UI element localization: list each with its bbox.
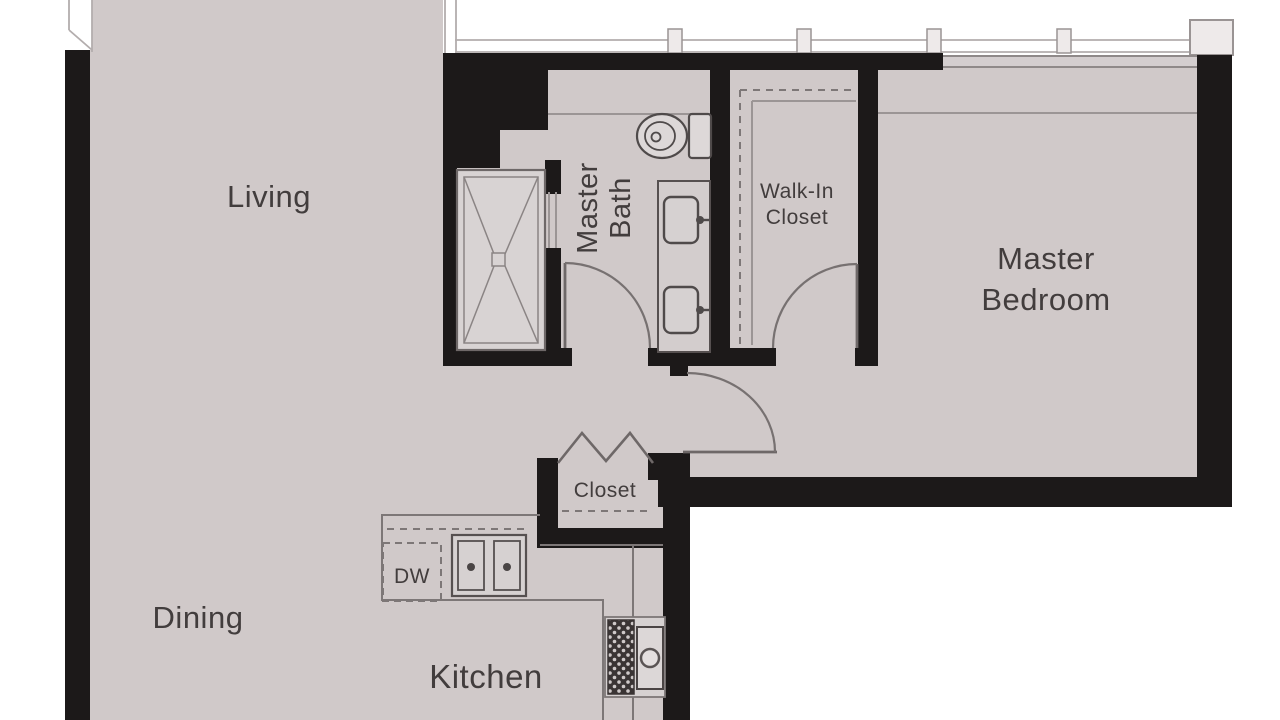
burner-strip [608,620,634,694]
wall-wic-bedroom-divider [858,70,878,352]
wall-shower-divider-upper [545,160,561,194]
bath-floor-notch [500,130,548,168]
exterior-top [443,0,1280,53]
exterior-bottom-right [690,507,1280,720]
room-label-living: Living [227,179,311,214]
kitchen-sink-icon [452,535,526,596]
sink-outer [452,535,526,596]
appliance-label-dishwasher: DW [394,565,430,588]
mullion-icon [668,29,682,53]
room-label-master-bedroom-line2: Bedroom [981,282,1110,317]
wall-shower-west [443,130,457,366]
corner-post-icon [1190,20,1233,55]
room-label-kitchen: Kitchen [429,658,543,695]
door-jamb-stub [670,362,688,376]
wall-bath-wic-divider [710,70,730,352]
wall-corner-jamb [648,453,690,480]
mullion-icon [927,29,941,53]
bedroom-window-glass [941,56,1197,67]
wall-kitchen-east [663,477,690,720]
oven-knob [641,649,659,667]
toilet-icon [637,114,711,158]
vanity-sink [664,197,698,243]
floor-plan-page: Living Dining Kitchen DW Closet Walk-In … [0,0,1280,720]
mullion-icon [1057,29,1071,53]
room-label-master-bath-line1: Master [572,162,604,254]
exterior-left [0,0,65,720]
window-gap [62,0,92,50]
shower-drain [492,253,505,266]
wall-left-exterior [65,50,90,720]
mullion-icon [797,29,811,53]
wall-bedroom-south [658,477,1232,507]
room-label-master-bath-line2: Bath [605,177,637,239]
room-label-walk-in-closet-line1: Walk-In [760,180,834,203]
wall-shower-divider-lower [545,248,561,350]
wall-right-exterior [1197,55,1232,490]
vanity-double-sink-icon [658,181,710,352]
faucet-icon [467,563,475,571]
vanity-sink [664,287,698,333]
room-label-hall-closet: Closet [574,479,637,502]
room-label-master-bedroom-line1: Master [997,241,1095,276]
shower-icon [457,170,545,350]
floor-plan: Living Dining Kitchen DW Closet Walk-In … [0,0,1280,720]
room-label-dining: Dining [153,600,244,635]
window-top-left [62,0,92,52]
faucet-icon [503,563,511,571]
room-label-walk-in-closet-line2: Closet [766,206,829,229]
toilet-tank [689,114,711,158]
range-oven-icon [605,617,665,697]
